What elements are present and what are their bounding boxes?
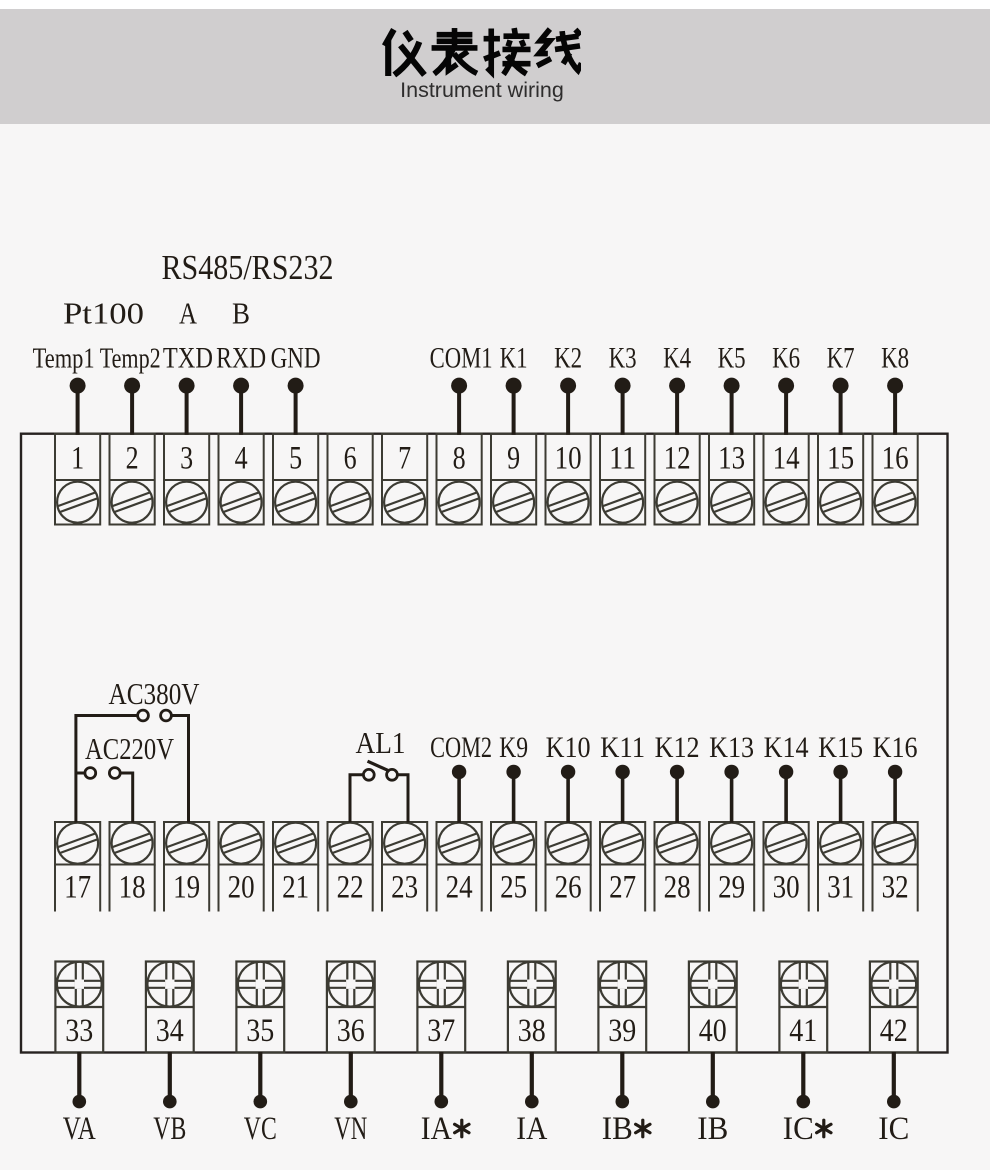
svg-text:AC380V: AC380V (109, 676, 200, 711)
svg-text:35: 35 (246, 1013, 274, 1049)
svg-text:17: 17 (64, 869, 91, 905)
svg-text:Pt100: Pt100 (63, 296, 144, 331)
svg-text:IC: IC (878, 1111, 909, 1147)
svg-text:42: 42 (880, 1013, 908, 1049)
svg-text:RXD: RXD (216, 341, 266, 374)
svg-text:20: 20 (228, 869, 255, 905)
svg-text:VA: VA (63, 1111, 96, 1147)
svg-text:12: 12 (664, 440, 691, 476)
svg-text:Temp1: Temp1 (33, 343, 95, 374)
svg-text:IB: IB (602, 1111, 633, 1147)
svg-text:21: 21 (282, 869, 309, 905)
svg-text:30: 30 (773, 869, 800, 905)
svg-text:3: 3 (180, 440, 193, 476)
svg-text:K11: K11 (600, 731, 645, 764)
svg-text:IC: IC (783, 1111, 814, 1147)
svg-text:K8: K8 (881, 341, 909, 374)
svg-text:13: 13 (718, 440, 745, 476)
svg-text:K6: K6 (772, 341, 800, 374)
svg-text:25: 25 (500, 869, 527, 905)
svg-text:34: 34 (156, 1013, 184, 1049)
svg-text:19: 19 (173, 869, 200, 905)
svg-text:10: 10 (555, 440, 582, 476)
svg-text:K13: K13 (709, 731, 754, 764)
svg-text:2: 2 (126, 440, 139, 476)
svg-text:8: 8 (453, 440, 466, 476)
svg-text:IA: IA (421, 1111, 452, 1147)
svg-text:VC: VC (244, 1111, 277, 1147)
svg-text:32: 32 (882, 869, 909, 905)
svg-text:39: 39 (608, 1013, 636, 1049)
svg-text:RS485/RS232: RS485/RS232 (162, 249, 334, 287)
svg-text:K9: K9 (499, 731, 528, 764)
svg-text:1: 1 (71, 440, 84, 476)
svg-text:GND: GND (271, 341, 321, 374)
svg-text:26: 26 (555, 869, 582, 905)
svg-text:K5: K5 (718, 341, 746, 374)
svg-text:K1: K1 (500, 341, 528, 374)
svg-text:COM2: COM2 (430, 731, 492, 764)
svg-text:K16: K16 (873, 731, 918, 764)
svg-text:Temp2: Temp2 (100, 343, 161, 374)
svg-text:A: A (179, 296, 197, 331)
svg-text:B: B (232, 296, 250, 331)
svg-text:AC220V: AC220V (85, 731, 174, 766)
svg-text:24: 24 (446, 869, 473, 905)
svg-text:36: 36 (337, 1013, 365, 1049)
svg-text:IB: IB (697, 1111, 728, 1147)
svg-text:K10: K10 (546, 731, 591, 764)
svg-text:4: 4 (235, 440, 248, 476)
svg-text:31: 31 (827, 869, 854, 905)
svg-text:11: 11 (609, 440, 636, 476)
svg-text:40: 40 (699, 1013, 727, 1049)
svg-text:K12: K12 (655, 731, 700, 764)
svg-text:16: 16 (882, 440, 909, 476)
svg-text:COM1: COM1 (430, 341, 493, 374)
svg-text:K15: K15 (818, 731, 863, 764)
svg-text:28: 28 (664, 869, 691, 905)
svg-text:IA: IA (516, 1111, 547, 1147)
svg-text:23: 23 (391, 869, 418, 905)
svg-text:27: 27 (609, 869, 636, 905)
svg-text:14: 14 (773, 440, 800, 476)
svg-text:6: 6 (344, 440, 357, 476)
svg-text:VN: VN (334, 1111, 367, 1147)
svg-text:VB: VB (153, 1111, 186, 1147)
svg-text:33: 33 (65, 1013, 93, 1049)
svg-text:5: 5 (289, 440, 302, 476)
svg-text:K4: K4 (663, 341, 691, 374)
svg-text:K14: K14 (764, 731, 809, 764)
svg-text:AL1: AL1 (356, 725, 406, 760)
svg-text:K2: K2 (554, 341, 582, 374)
svg-text:37: 37 (427, 1013, 455, 1049)
svg-text:7: 7 (398, 440, 411, 476)
svg-text:TXD: TXD (163, 341, 213, 374)
svg-text:K3: K3 (609, 341, 637, 374)
svg-text:K7: K7 (827, 341, 855, 374)
svg-text:41: 41 (789, 1013, 817, 1049)
svg-text:9: 9 (507, 440, 520, 476)
svg-text:29: 29 (718, 869, 745, 905)
svg-text:22: 22 (337, 869, 364, 905)
svg-text:18: 18 (119, 869, 146, 905)
svg-text:15: 15 (827, 440, 854, 476)
svg-text:38: 38 (518, 1013, 546, 1049)
